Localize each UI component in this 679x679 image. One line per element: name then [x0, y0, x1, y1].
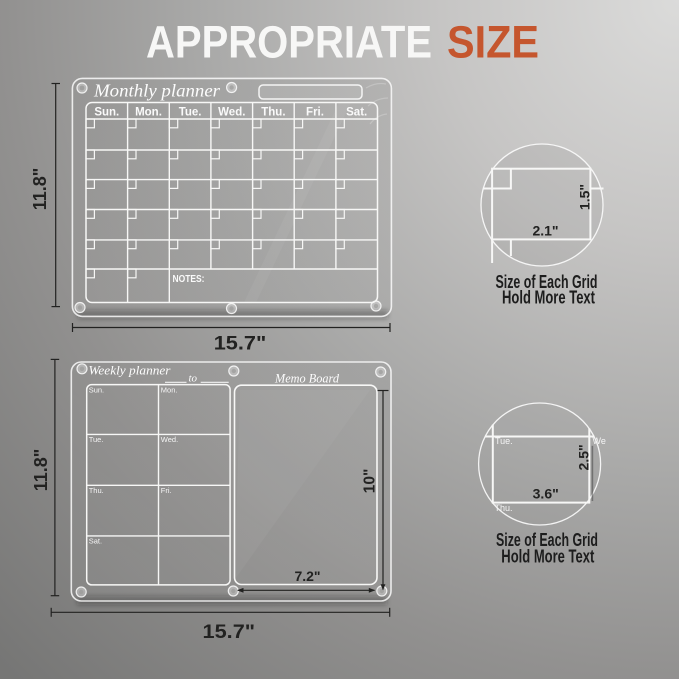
svg-text:1.5": 1.5"	[576, 184, 592, 210]
svg-text:Weekly planner: Weekly planner	[89, 363, 172, 378]
svg-text:Thu.: Thu.	[89, 486, 104, 495]
svg-text:Hold More Text: Hold More Text	[502, 288, 595, 308]
svg-text:15.7": 15.7"	[214, 333, 267, 355]
svg-text:to: to	[189, 373, 198, 385]
svg-text:Tue.: Tue.	[89, 435, 104, 444]
svg-text:2.1": 2.1"	[532, 223, 558, 239]
svg-text:11.8": 11.8"	[31, 449, 51, 492]
svg-text:15.7": 15.7"	[203, 621, 256, 643]
svg-text:3.6": 3.6"	[533, 486, 559, 502]
svg-text:We: We	[593, 436, 606, 446]
svg-text:Tue.: Tue.	[495, 436, 513, 446]
svg-text:Tue.: Tue.	[179, 107, 202, 119]
svg-text:10": 10"	[362, 469, 379, 494]
svg-text:Thu.: Thu.	[261, 107, 285, 119]
svg-text:Wed.: Wed.	[218, 107, 245, 119]
svg-text:Memo Board: Memo Board	[274, 371, 339, 386]
svg-text:7.2": 7.2"	[294, 568, 320, 584]
svg-text:Mon.: Mon.	[161, 385, 178, 394]
svg-text:Mon.: Mon.	[135, 107, 162, 119]
svg-text:Hold More Text: Hold More Text	[501, 547, 594, 567]
svg-text:APPROPRIATE: APPROPRIATE	[146, 17, 432, 68]
svg-text:2.5": 2.5"	[576, 444, 592, 470]
svg-text:11.8": 11.8"	[30, 168, 50, 211]
svg-text:Thu.: Thu.	[495, 503, 513, 513]
svg-text:Sun.: Sun.	[94, 107, 119, 119]
svg-text:Sat.: Sat.	[346, 107, 367, 119]
svg-text:Fri.: Fri.	[306, 107, 324, 119]
svg-text:SIZE: SIZE	[447, 17, 539, 68]
svg-text:Fri.: Fri.	[161, 486, 172, 495]
svg-text:Sat.: Sat.	[89, 537, 102, 546]
svg-text:Monthly planner: Monthly planner	[93, 81, 221, 101]
svg-text:NOTES:: NOTES:	[173, 273, 205, 285]
svg-text:Wed.: Wed.	[161, 435, 178, 444]
svg-text:Sun.: Sun.	[89, 385, 104, 394]
